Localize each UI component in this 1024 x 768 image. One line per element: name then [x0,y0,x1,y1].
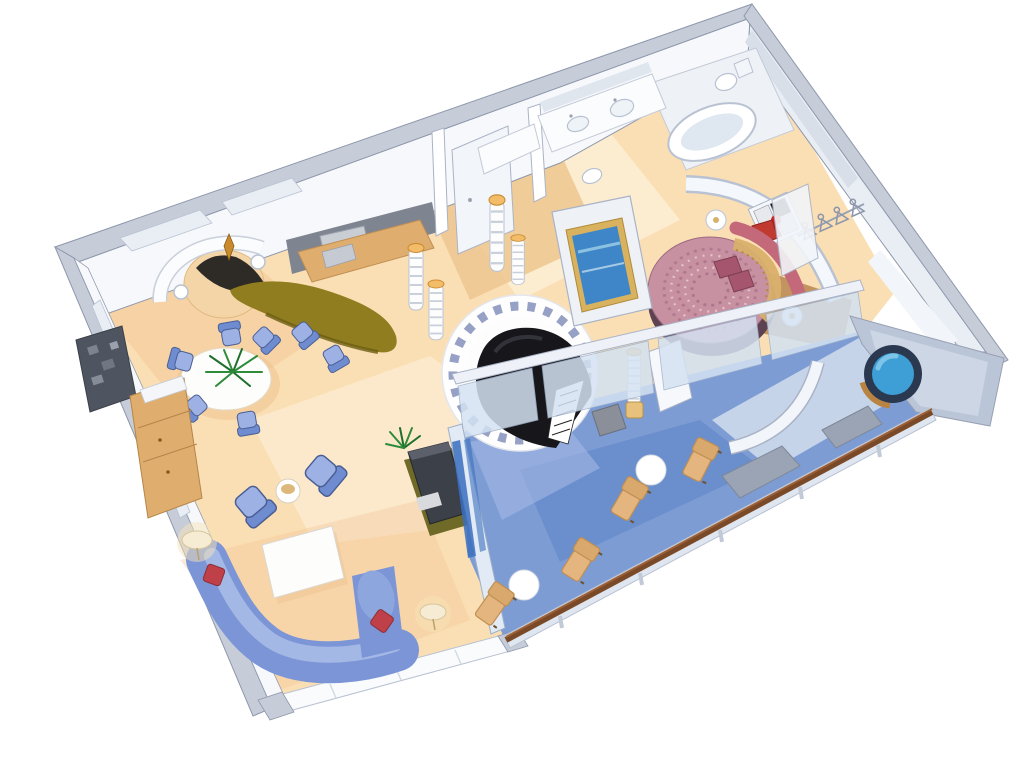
door-knob [468,198,472,202]
striped-column [489,195,505,271]
wall-lamp [174,285,188,299]
nightstand-lamp [713,217,719,223]
rail-post [720,530,722,542]
striped-column [408,244,424,311]
rail-post [878,445,880,457]
rail-post [560,616,562,628]
faucet [569,114,572,117]
striped-column [511,235,525,285]
column-base [626,402,643,418]
balcony-table [636,455,666,485]
floorplan-illustration [0,0,1024,768]
faucet [613,98,616,101]
wall-lamp [251,255,265,269]
floor-lamp [177,522,217,562]
floor-lamp [415,596,451,632]
rail-post [640,573,642,585]
table-lamp [281,484,295,494]
rail-post [800,487,802,499]
hot-tub-water [872,353,914,395]
striped-column [428,280,444,340]
